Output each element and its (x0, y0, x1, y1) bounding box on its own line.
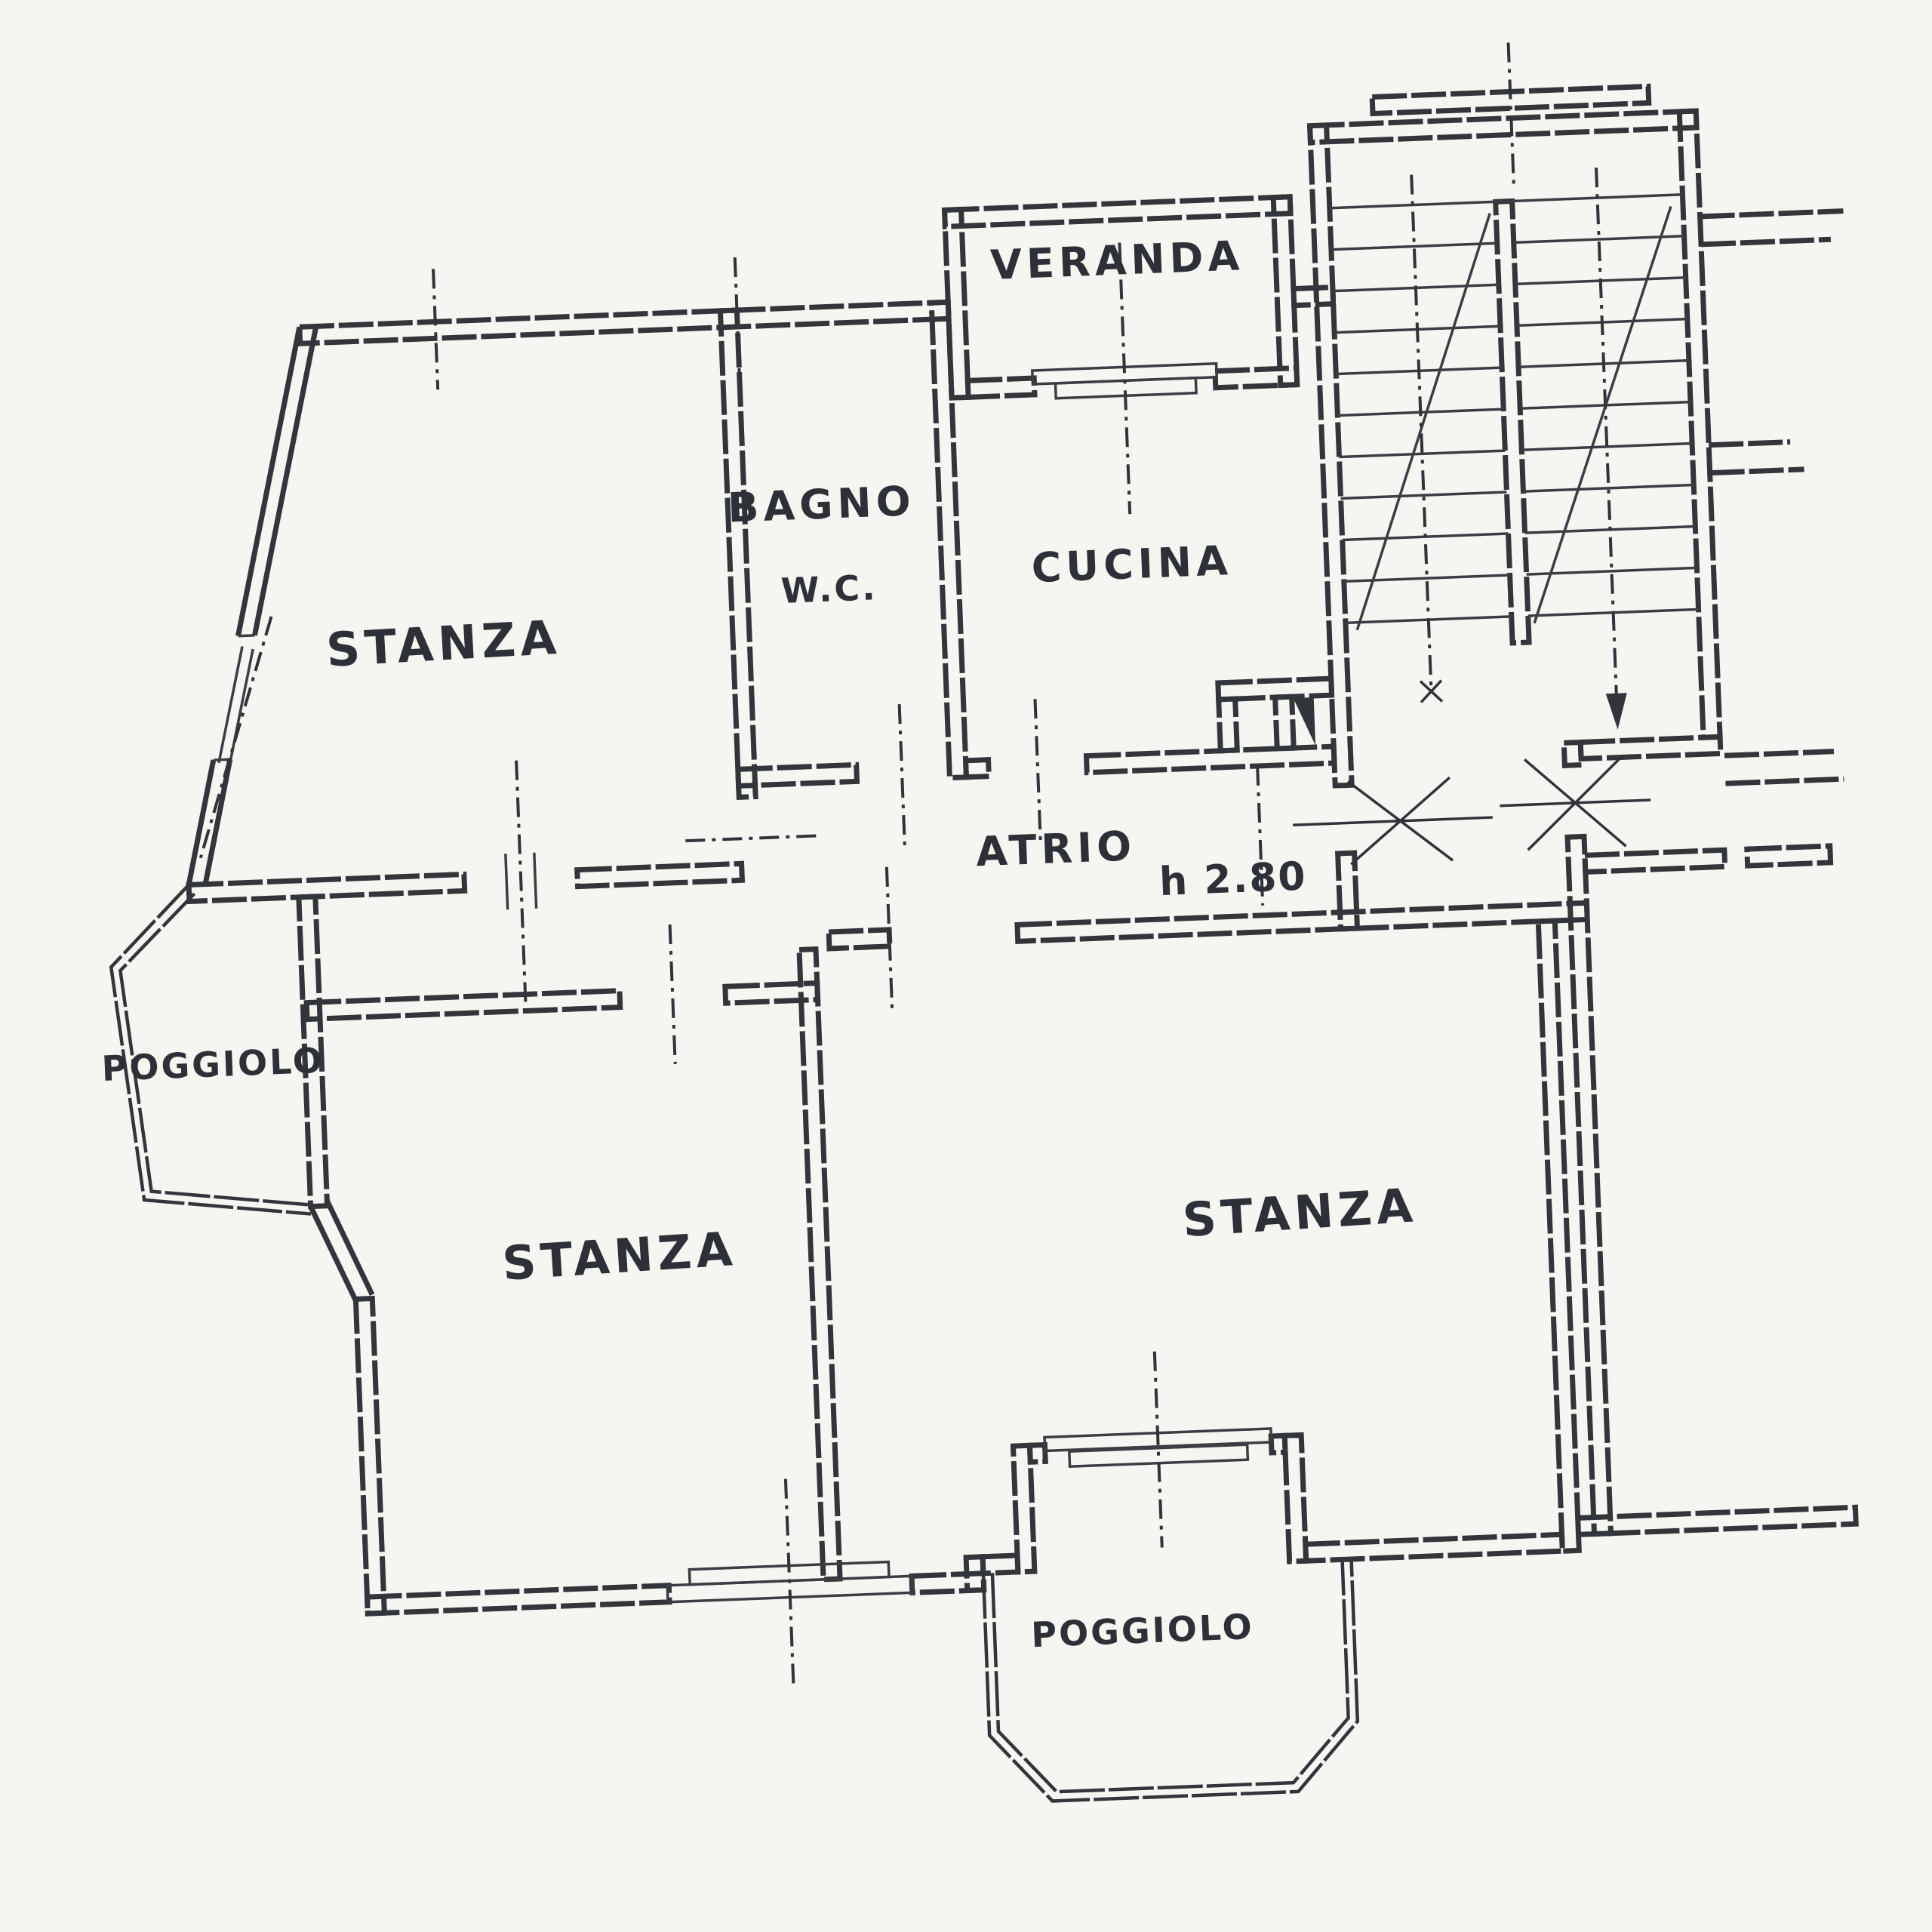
label-wc: W.C. (780, 567, 878, 611)
door-jamb (214, 759, 230, 760)
label-poggiolo-left: POGGIOLO (101, 1040, 325, 1089)
label-veranda: VERANDA (989, 232, 1244, 289)
floor-plan-canvas: VERANDA BAGNO W.C. CUCINA STANZA ATRIO h… (0, 0, 1932, 1932)
label-cucina: CUCINA (1031, 537, 1233, 592)
label-atrio-height: h 2.80 (1158, 854, 1308, 905)
door-jamb (238, 635, 255, 636)
label-poggiolo-bottom: POGGIOLO (1030, 1606, 1254, 1655)
neighbour-stub (1710, 469, 1804, 473)
label-atrio: ATRIO (975, 822, 1137, 875)
neighbour-stub (1709, 442, 1790, 445)
label-bagno: BAGNO (727, 477, 916, 531)
